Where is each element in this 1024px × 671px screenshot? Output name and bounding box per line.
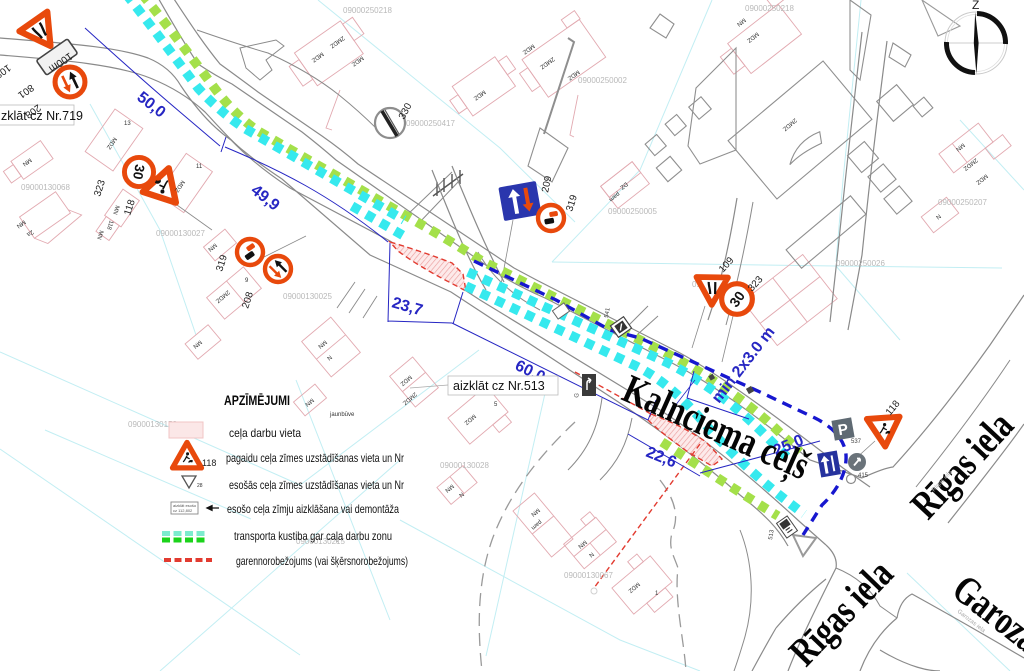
svg-text:09000130068: 09000130068 [21, 183, 70, 192]
svg-text:09000250218: 09000250218 [343, 6, 392, 15]
svg-text:11: 11 [196, 164, 203, 170]
svg-text:13: 13 [124, 121, 131, 127]
svg-text:jaunbūve: jaunbūve [329, 412, 355, 418]
svg-text:30: 30 [130, 163, 147, 180]
svg-text:09000250026: 09000250026 [836, 259, 885, 268]
svg-text:transporta kustiba gar caļa da: transporta kustiba gar caļa darbu zonu [234, 529, 392, 543]
svg-text:09000250218: 09000250218 [745, 4, 794, 13]
svg-text:118: 118 [202, 458, 216, 468]
svg-text:09000130027: 09000130027 [156, 229, 205, 238]
svg-text:aizklāt cz Nr.513: aizklāt cz Nr.513 [453, 379, 545, 393]
svg-text:415: 415 [858, 473, 869, 479]
svg-text:pagaidu ceļa zīmes uzstādīšana: pagaidu ceļa zīmes uzstādīšanas vieta un… [226, 451, 404, 465]
svg-text:09000250417: 09000250417 [406, 119, 455, 128]
svg-text:esošās ceļa zīmes uzstādīšanas: esošās ceļa zīmes uzstādīšanas vieta un … [229, 478, 404, 492]
svg-text:APZĪMĒJUMI: APZĪMĒJUMI [224, 392, 290, 408]
svg-text:cz 112,802: cz 112,802 [173, 508, 193, 513]
svg-text:09000250002: 09000250002 [578, 76, 627, 85]
svg-text:09000250005: 09000250005 [608, 207, 657, 216]
svg-text:09000130025: 09000130025 [283, 292, 332, 301]
svg-text:537: 537 [851, 439, 862, 445]
svg-text:09000250207: 09000250207 [938, 198, 987, 207]
svg-text:esošo ceļa zīmju aizklāšana va: esošo ceļa zīmju aizklāšana vai demontāž… [227, 502, 399, 516]
svg-text:09000130067: 09000130067 [564, 571, 613, 580]
svg-text:garennorobežojums (vai šķērsno: garennorobežojums (vai šķērsnorobežojums… [236, 554, 408, 568]
svg-text:09000130028: 09000130028 [440, 461, 489, 470]
svg-text:Z: Z [972, 0, 979, 12]
svg-text:28: 28 [197, 483, 203, 489]
svg-text:ceļa darbu vieta: ceļa darbu vieta [229, 426, 301, 440]
